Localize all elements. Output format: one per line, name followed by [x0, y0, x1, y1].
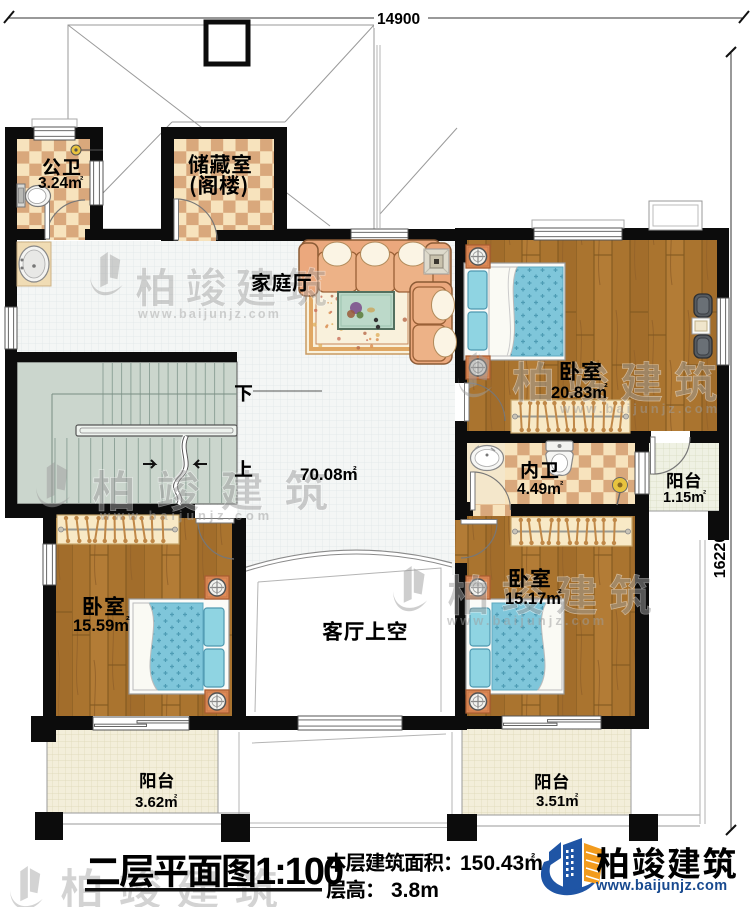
svg-text:15.59m: 15.59m [73, 617, 129, 635]
svg-text:3.8m: 3.8m [391, 879, 439, 902]
svg-text:3.62m: 3.62m [135, 794, 178, 811]
svg-text:www.baijunjz.com: www.baijunjz.com [595, 878, 728, 894]
svg-text:4.49m: 4.49m [517, 481, 561, 498]
svg-text:www.baijunjz.com: www.baijunjz.com [99, 508, 273, 523]
svg-text:www.baijunjz.com: www.baijunjz.com [559, 401, 720, 416]
svg-text:70.08m: 70.08m [300, 465, 358, 484]
svg-text:²: ² [703, 489, 706, 500]
svg-text:www.baijunjz.com: www.baijunjz.com [446, 613, 607, 628]
svg-text:²: ² [575, 792, 578, 803]
svg-text:www.baijunjz.com: www.baijunjz.com [137, 307, 281, 321]
svg-text:1.15m: 1.15m [663, 490, 704, 506]
svg-text:20.83m: 20.83m [551, 384, 607, 402]
svg-text:²: ² [174, 793, 177, 804]
svg-text:15.17m: 15.17m [505, 590, 561, 608]
svg-text:14900: 14900 [377, 11, 420, 28]
svg-text:²: ² [353, 465, 357, 477]
svg-text:²: ² [604, 382, 608, 394]
svg-text:16220: 16220 [712, 534, 729, 579]
svg-text:²: ² [531, 851, 535, 865]
svg-text:²: ² [558, 588, 562, 600]
svg-text:3.51m: 3.51m [536, 793, 579, 810]
svg-text:²: ² [126, 615, 130, 627]
svg-text:3.24m: 3.24m [38, 175, 82, 192]
